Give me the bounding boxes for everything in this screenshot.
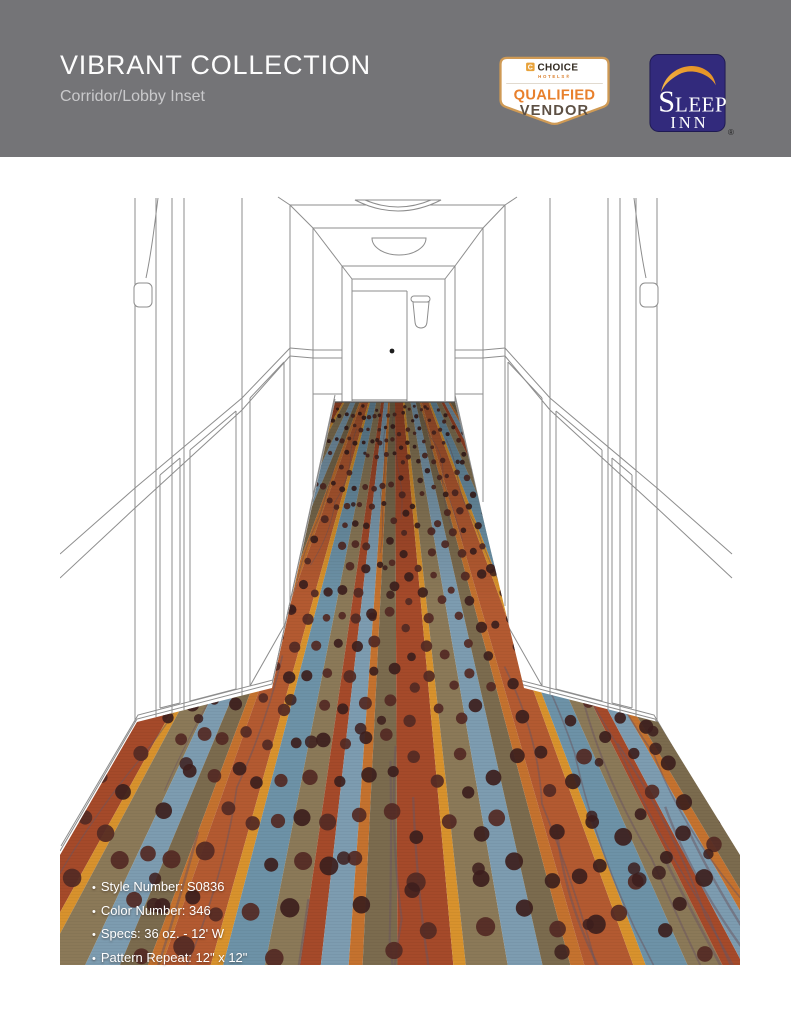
qualified-vendor-badge: C CHOICE HOTELS® QUALIFIED VENDOR bbox=[497, 55, 612, 127]
spec-line: •Pattern Repeat: 12" x 12" bbox=[92, 947, 247, 971]
spec-sheet-page: VIBRANT COLLECTION Corridor/Lobby Inset … bbox=[0, 0, 791, 1024]
bullet-icon: • bbox=[92, 882, 96, 894]
page-subtitle: Corridor/Lobby Inset bbox=[60, 88, 205, 106]
bullet-icon: • bbox=[92, 929, 96, 941]
choice-hotels-text: HOTELS® bbox=[538, 74, 571, 79]
bullet-icon: • bbox=[92, 906, 96, 918]
choice-brand-text: CHOICE bbox=[537, 62, 578, 73]
registered-mark: ® bbox=[728, 128, 734, 137]
spec-list: •Style Number: S0836 •Color Number: 346 … bbox=[92, 876, 247, 971]
vendor-text: VENDOR bbox=[520, 103, 590, 119]
spec-line: •Color Number: 346 bbox=[92, 900, 247, 924]
spec-line: •Specs: 36 oz. - 12' W bbox=[92, 923, 247, 947]
corridor-rendering bbox=[60, 170, 740, 965]
choice-icon-letter: C bbox=[528, 63, 533, 71]
qualified-text: QUALIFIED bbox=[514, 88, 596, 104]
page-title: VIBRANT COLLECTION bbox=[60, 50, 371, 81]
header-band: VIBRANT COLLECTION Corridor/Lobby Inset … bbox=[0, 0, 791, 157]
spec-line: •Style Number: S0836 bbox=[92, 876, 247, 900]
inn-text: INN bbox=[670, 113, 708, 132]
sleep-inn-logo: SLEEP INN bbox=[648, 53, 727, 133]
door-knob bbox=[390, 349, 395, 354]
bullet-icon: • bbox=[92, 953, 96, 965]
